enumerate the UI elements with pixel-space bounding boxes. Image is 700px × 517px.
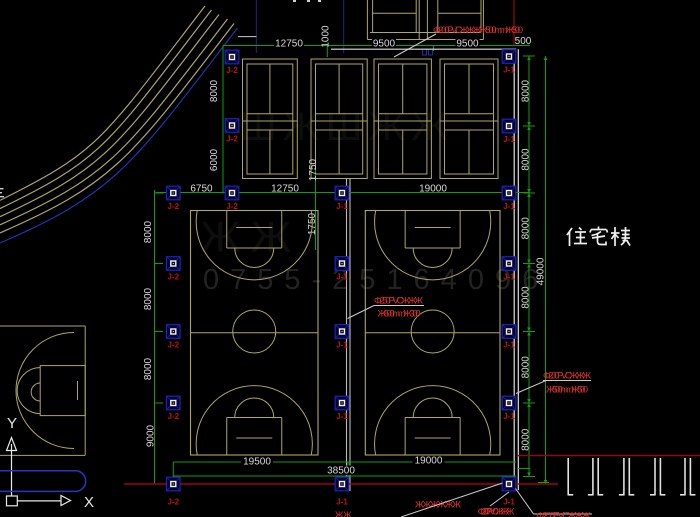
- svg-text:Y: Y: [7, 415, 17, 432]
- svg-text:Ж500mmЖ500: Ж500mmЖ500: [546, 385, 588, 396]
- svg-text:J-2: J-2: [226, 135, 238, 144]
- svg-text:19000: 19000: [419, 183, 447, 194]
- svg-text:Φ200PVCЖЖЖ: Φ200PVCЖЖЖ: [537, 511, 591, 517]
- svg-text:Ж600mmЖ300: Ж600mmЖ300: [378, 309, 421, 320]
- svg-text:8000: 8000: [143, 220, 154, 243]
- svg-text:ШЖШЖЖ: ШЖШЖЖ: [240, 105, 454, 149]
- svg-text:9000: 9000: [146, 424, 157, 447]
- svg-text:8000: 8000: [521, 356, 532, 379]
- svg-text:ЖЖ: ЖЖ: [200, 213, 301, 262]
- svg-text:8000: 8000: [521, 79, 532, 102]
- svg-text:12750: 12750: [275, 39, 303, 50]
- svg-text:8000: 8000: [143, 357, 154, 380]
- svg-text:ЖЖ: ЖЖ: [335, 510, 352, 517]
- svg-text:J-1: J-1: [503, 66, 515, 75]
- svg-text:6000: 6000: [209, 148, 220, 171]
- svg-text:Φ200PVCЖЖЖ: Φ200PVCЖЖЖ: [478, 507, 515, 517]
- svg-text:X: X: [84, 494, 94, 511]
- svg-text:8000: 8000: [521, 148, 532, 171]
- svg-text:J-2: J-2: [168, 273, 180, 282]
- svg-text:49000: 49000: [536, 257, 547, 285]
- svg-text:J-1: J-1: [503, 273, 515, 282]
- svg-text:J-1: J-1: [503, 135, 515, 144]
- svg-text:6750: 6750: [190, 183, 213, 194]
- svg-text:J-1: J-1: [336, 341, 348, 350]
- svg-text:Φ200PVCЖЖЖЖ500mmЖ500: Φ200PVCЖЖЖЖ500mmЖ500: [433, 25, 523, 36]
- svg-text:J-1: J-1: [336, 498, 348, 507]
- svg-text:J-2: J-2: [168, 202, 180, 211]
- svg-text:J-2: J-2: [226, 66, 238, 75]
- svg-text:38500: 38500: [327, 466, 355, 477]
- svg-text:J-1: J-1: [336, 412, 348, 421]
- svg-text:J-1: J-1: [336, 202, 348, 211]
- svg-text:J-1: J-1: [503, 202, 515, 211]
- svg-text:500: 500: [515, 36, 532, 47]
- svg-text:J-2: J-2: [168, 498, 180, 507]
- svg-text:8000: 8000: [521, 428, 532, 451]
- svg-text:12750: 12750: [271, 183, 299, 194]
- svg-text:J-1: J-1: [503, 341, 515, 350]
- svg-text:19000: 19000: [415, 456, 443, 467]
- svg-text:9500: 9500: [456, 39, 479, 50]
- svg-text:J-2: J-2: [226, 202, 238, 211]
- svg-text:19500: 19500: [243, 457, 271, 468]
- svg-text:J-1: J-1: [503, 498, 515, 507]
- svg-text:J-2: J-2: [168, 412, 180, 421]
- svg-text:J-1: J-1: [336, 273, 348, 282]
- svg-text:J-2: J-2: [168, 341, 180, 350]
- svg-text:Φ250PVCЖЖЖ: Φ250PVCЖЖЖ: [374, 296, 423, 307]
- svg-text:J-1: J-1: [503, 412, 515, 421]
- svg-text:1750: 1750: [308, 158, 319, 181]
- svg-text:1000: 1000: [320, 25, 331, 48]
- svg-text:8000: 8000: [143, 287, 154, 310]
- svg-text:8000: 8000: [521, 217, 532, 240]
- svg-text:8000: 8000: [209, 79, 220, 102]
- svg-text:Φ200PVCЖЖЖ: Φ200PVCЖЖЖ: [543, 371, 591, 382]
- svg-text:8000: 8000: [521, 286, 532, 309]
- svg-text:9500: 9500: [373, 39, 396, 50]
